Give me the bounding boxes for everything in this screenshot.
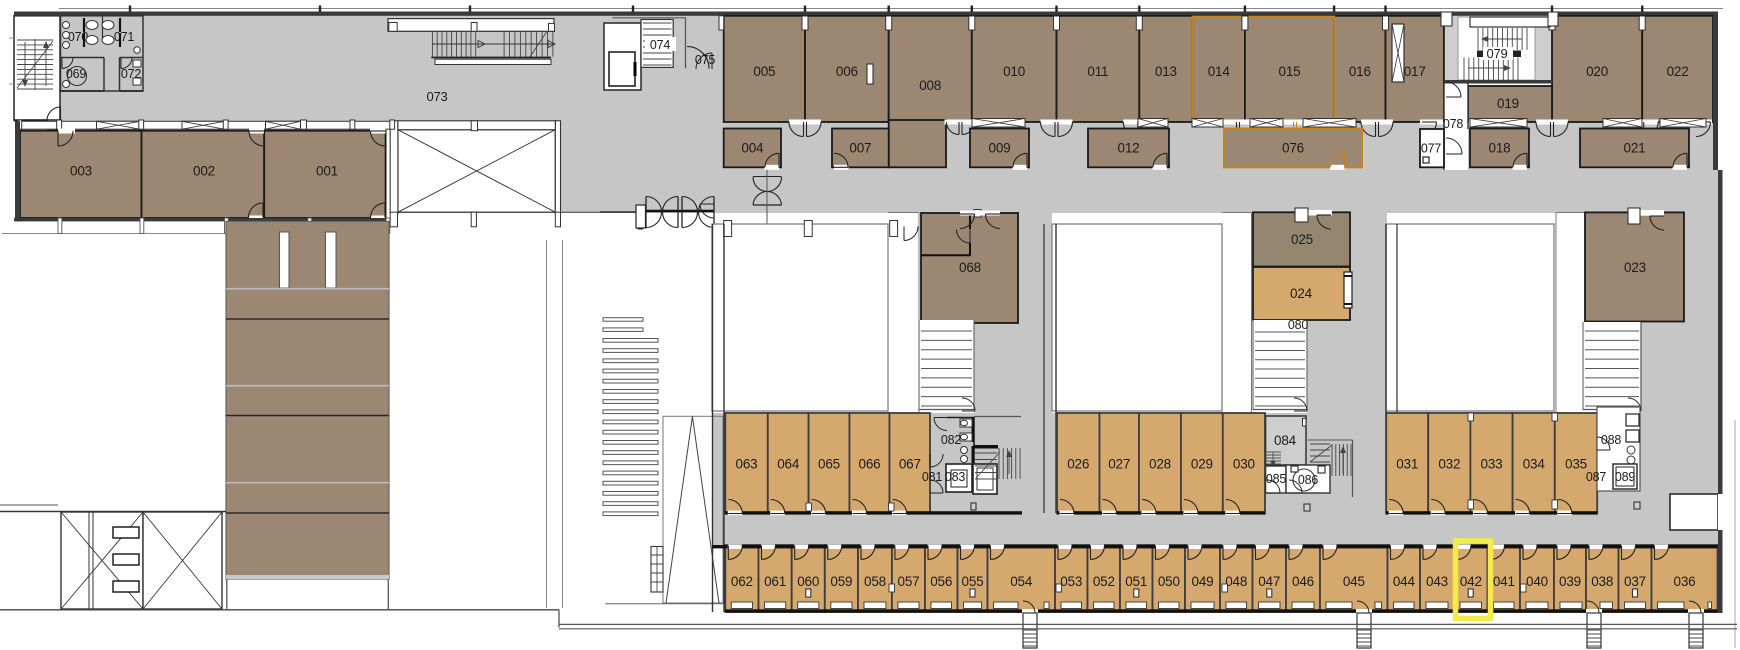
svg-text:019: 019: [1497, 96, 1519, 111]
svg-text:047: 047: [1258, 574, 1280, 589]
svg-text:014: 014: [1208, 64, 1231, 79]
svg-text:035: 035: [1565, 457, 1587, 472]
svg-text:089: 089: [1615, 470, 1636, 484]
svg-text:083: 083: [945, 470, 966, 484]
svg-text:003: 003: [70, 164, 92, 179]
svg-text:087: 087: [1586, 470, 1607, 484]
svg-text:079: 079: [1486, 46, 1507, 61]
svg-text:078: 078: [1443, 117, 1464, 131]
svg-text:073: 073: [426, 89, 447, 104]
svg-text:021: 021: [1624, 141, 1646, 156]
svg-text:053: 053: [1060, 574, 1082, 589]
svg-text:067: 067: [899, 457, 921, 472]
svg-text:070: 070: [68, 30, 89, 44]
svg-text:002: 002: [193, 164, 215, 179]
svg-text:056: 056: [930, 574, 952, 589]
svg-text:011: 011: [1087, 64, 1108, 79]
svg-text:061: 061: [764, 574, 786, 589]
svg-text:025: 025: [1291, 232, 1313, 247]
svg-text:012: 012: [1118, 141, 1140, 156]
svg-text:009: 009: [989, 141, 1011, 156]
svg-text:024: 024: [1290, 286, 1313, 301]
svg-text:005: 005: [753, 64, 775, 79]
svg-text:041: 041: [1493, 574, 1515, 589]
svg-text:042: 042: [1460, 574, 1482, 589]
svg-text:033: 033: [1481, 457, 1503, 472]
svg-text:045: 045: [1343, 574, 1365, 589]
svg-text:084: 084: [1274, 433, 1297, 448]
svg-text:027: 027: [1108, 457, 1130, 472]
svg-text:046: 046: [1292, 574, 1314, 589]
svg-text:028: 028: [1149, 457, 1171, 472]
svg-text:080: 080: [1288, 318, 1309, 332]
svg-text:049: 049: [1192, 574, 1214, 589]
svg-text:018: 018: [1489, 141, 1511, 156]
svg-text:068: 068: [959, 260, 981, 275]
svg-text:039: 039: [1559, 574, 1581, 589]
svg-text:074: 074: [650, 38, 671, 52]
svg-text:062: 062: [731, 574, 753, 589]
svg-text:030: 030: [1233, 457, 1255, 472]
svg-text:031: 031: [1396, 457, 1418, 472]
svg-text:051: 051: [1125, 574, 1147, 589]
svg-text:013: 013: [1155, 64, 1177, 79]
svg-text:026: 026: [1067, 457, 1089, 472]
svg-text:008: 008: [919, 78, 941, 93]
svg-text:066: 066: [859, 457, 881, 472]
svg-text:065: 065: [818, 457, 840, 472]
svg-text:006: 006: [836, 64, 858, 79]
svg-text:055: 055: [962, 574, 984, 589]
svg-text:048: 048: [1225, 574, 1247, 589]
svg-text:029: 029: [1191, 457, 1213, 472]
svg-text:034: 034: [1523, 457, 1546, 472]
svg-text:015: 015: [1279, 64, 1301, 79]
svg-text:077: 077: [1421, 142, 1442, 156]
svg-text:043: 043: [1426, 574, 1448, 589]
svg-text:032: 032: [1438, 457, 1460, 472]
svg-text:058: 058: [864, 574, 886, 589]
svg-text:071: 071: [114, 30, 135, 44]
svg-text:038: 038: [1591, 574, 1613, 589]
svg-text:001: 001: [316, 164, 338, 179]
svg-text:007: 007: [849, 141, 871, 156]
svg-text:010: 010: [1003, 64, 1025, 79]
svg-text:076: 076: [1282, 141, 1304, 156]
svg-text:004: 004: [741, 141, 764, 156]
svg-text:023: 023: [1624, 260, 1646, 275]
svg-text:022: 022: [1667, 64, 1689, 79]
svg-text:063: 063: [736, 457, 758, 472]
svg-text:059: 059: [830, 574, 852, 589]
svg-text:057: 057: [898, 574, 920, 589]
svg-text:052: 052: [1093, 574, 1115, 589]
svg-text:060: 060: [797, 574, 819, 589]
svg-text:040: 040: [1526, 574, 1548, 589]
svg-text:016: 016: [1349, 64, 1371, 79]
svg-text:054: 054: [1010, 574, 1033, 589]
svg-text:036: 036: [1674, 574, 1696, 589]
svg-text:082: 082: [941, 433, 962, 447]
svg-text:088: 088: [1601, 433, 1622, 447]
svg-text:081: 081: [922, 470, 943, 484]
svg-text:037: 037: [1624, 574, 1646, 589]
svg-text:044: 044: [1393, 574, 1416, 589]
svg-text:064: 064: [777, 457, 800, 472]
svg-text:086: 086: [1298, 473, 1319, 487]
svg-text:050: 050: [1158, 574, 1180, 589]
svg-text:020: 020: [1586, 64, 1608, 79]
svg-text:017: 017: [1404, 64, 1426, 79]
